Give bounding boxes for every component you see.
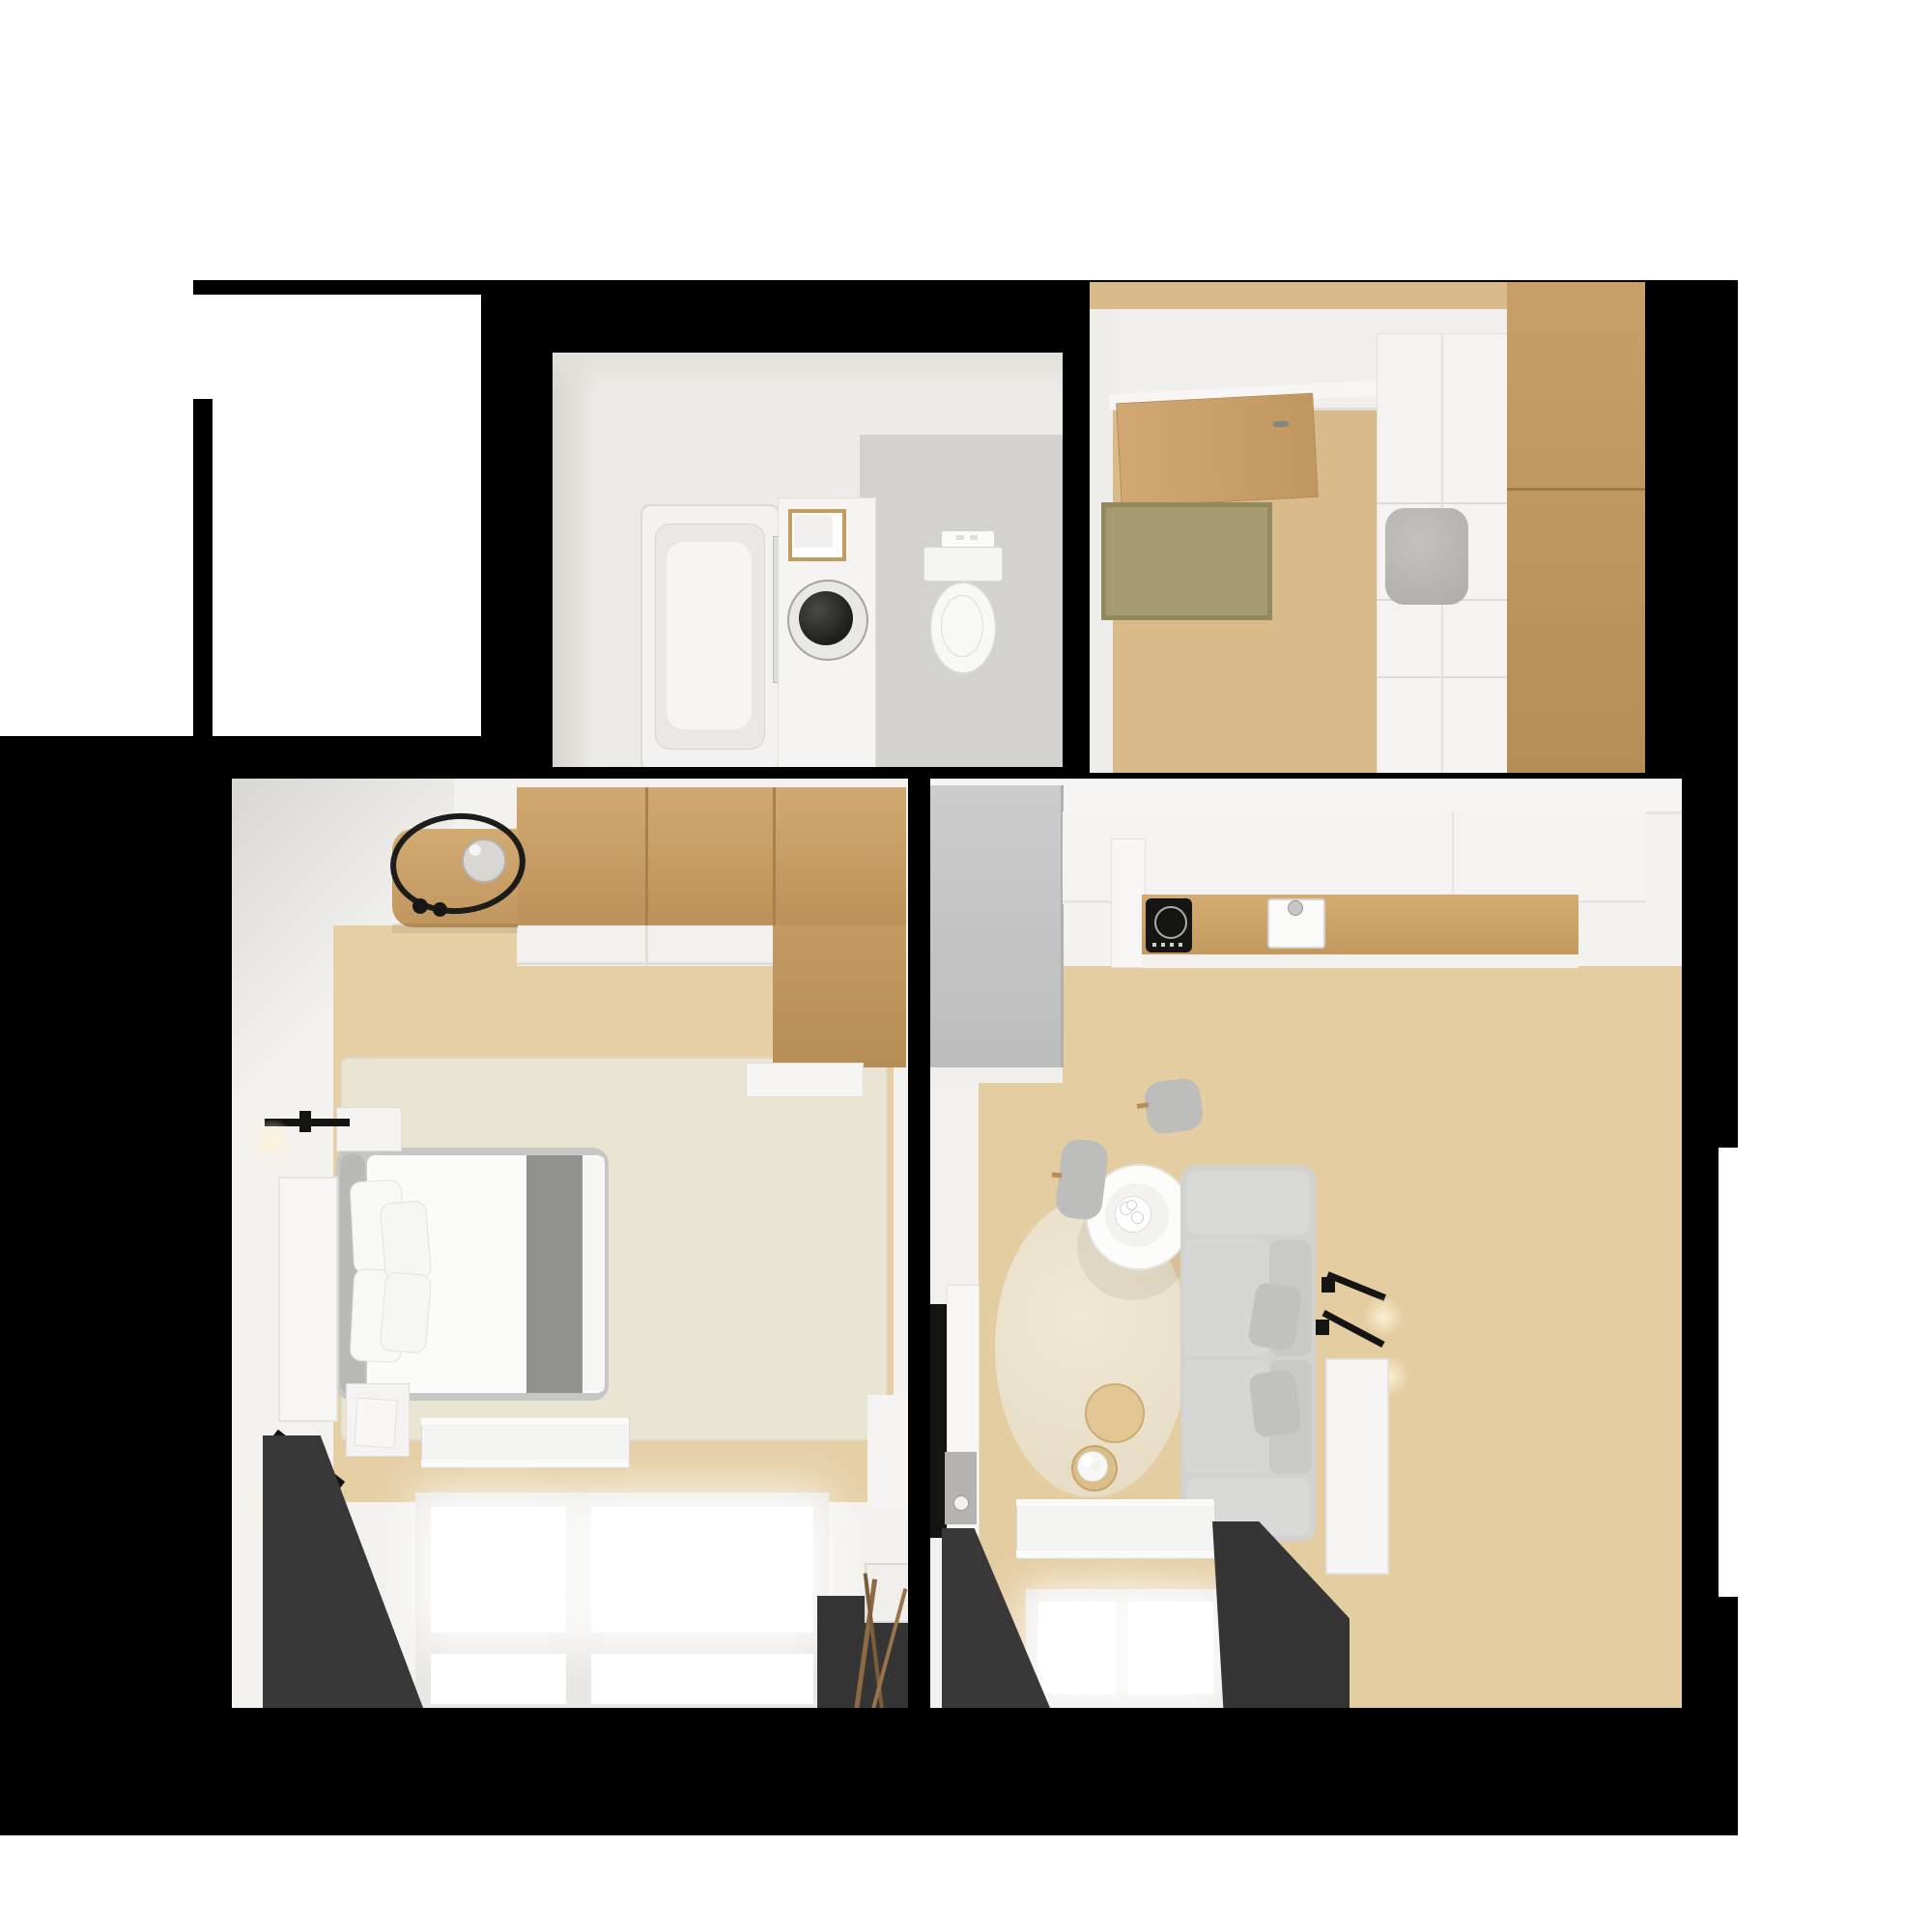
- pillow-4: [380, 1271, 433, 1354]
- window-pane-1: [431, 1507, 566, 1633]
- spot-vase-2: [433, 902, 447, 917]
- cooktop-ring: [1154, 906, 1187, 939]
- kitchen-counter-front: [1142, 954, 1578, 968]
- spot-vase-1: [412, 898, 428, 914]
- sink-faucet: [1288, 900, 1303, 916]
- bedroom-wardrobe: [517, 787, 906, 927]
- window-pane-4: [591, 1654, 813, 1704]
- door-handle: [1273, 421, 1289, 428]
- flush-button-left: [956, 535, 964, 540]
- toilet-flush-plate: [941, 530, 995, 548]
- bathroom-wall-shade-top: [553, 353, 1063, 395]
- wardrobe-wood-panel: [1507, 282, 1645, 773]
- dining-chair-top: [1143, 1076, 1206, 1136]
- hall-pouf: [1385, 508, 1468, 605]
- artwork-left-wall: [278, 1177, 338, 1422]
- glass-vase-highlight: [469, 844, 481, 856]
- living-radiator-rail-top: [1016, 1499, 1213, 1506]
- balcony-floor: [213, 295, 481, 736]
- counter-end-panel: [1111, 838, 1146, 968]
- gray-side-unit: [945, 1452, 977, 1524]
- chair-left-arm: [1052, 1172, 1063, 1178]
- cabinet-band-edge: [517, 962, 773, 965]
- white-notch-right: [1719, 1148, 1739, 1597]
- living-window-pane-1: [1038, 1602, 1116, 1694]
- cooktop-controls: [1152, 943, 1185, 947]
- cabinet-band-seam: [645, 925, 648, 966]
- living-window-pane-2: [1128, 1602, 1213, 1694]
- wall-lamp-right-1-glow: [1363, 1296, 1404, 1337]
- room-bedroom: [232, 779, 908, 1708]
- book-stack: [354, 1398, 397, 1449]
- wall-lamp-glow-top: [249, 1119, 296, 1165]
- white-notch: [1719, 1148, 1739, 1597]
- room-hallway: [1090, 282, 1645, 773]
- console-shadow: [392, 923, 518, 933]
- kitchen-upper-seam: [1452, 811, 1454, 904]
- fridge-gray-block: [930, 785, 1063, 1067]
- sofa-pillow-2: [1248, 1369, 1302, 1437]
- wall-lamp-right-2-head: [1316, 1320, 1329, 1335]
- bed-mattress-strip: [582, 1157, 604, 1391]
- toilet-tank: [923, 547, 1003, 582]
- side-unit-knob: [953, 1495, 969, 1511]
- pillow-3: [380, 1200, 433, 1283]
- kitchen-counter-wood: [1142, 895, 1578, 956]
- apartment-floorplan-render: [0, 0, 1932, 1932]
- radiator-rail-bottom: [421, 1460, 628, 1466]
- bedroom-wardrobe-right-col: [773, 925, 906, 1067]
- nightstand-top: [336, 1107, 402, 1151]
- sofa-armrest-top: [1186, 1171, 1310, 1235]
- wall-shelf-desk: [746, 1063, 864, 1097]
- bathtub-basin: [667, 542, 752, 729]
- glass-vase: [462, 838, 506, 883]
- wall-lamp-mount-top: [299, 1111, 311, 1132]
- bedroom-wardrobe-seam-a: [645, 787, 648, 927]
- bedroom-wardrobe-seam-b: [773, 787, 776, 927]
- living-radiator-rail-bottom: [1016, 1550, 1213, 1557]
- bed-runner-blanket: [526, 1155, 582, 1393]
- gray-block-base: [930, 1067, 1063, 1083]
- room-living-kitchen: [930, 779, 1682, 1708]
- flush-button-right: [970, 535, 978, 540]
- sofa-pillow-1: [1247, 1282, 1303, 1352]
- side-desk: [867, 1395, 908, 1509]
- balcony-door-gap: [193, 295, 213, 399]
- coffee-table-large: [1085, 1383, 1145, 1443]
- entry-door: [1116, 393, 1318, 508]
- kitchen-upper-cabinets: [1063, 811, 1646, 904]
- washer-drum: [799, 591, 853, 645]
- bathroom-wall-shade-left: [553, 353, 597, 767]
- window-pane-2: [591, 1507, 813, 1633]
- toilet-seat: [941, 595, 983, 657]
- window-pane-3: [431, 1654, 566, 1704]
- plate-3: [1126, 1200, 1137, 1210]
- room-balcony: [193, 295, 481, 736]
- room-bathroom: [553, 353, 1063, 767]
- radiator-rail-top: [421, 1418, 628, 1425]
- towel-stack: [794, 515, 833, 548]
- entry-mat: [1101, 502, 1272, 620]
- plate-2: [1131, 1211, 1144, 1224]
- flower-ball-2: [1091, 1461, 1100, 1470]
- artwork-right-wall: [1325, 1358, 1389, 1575]
- wood-panel-seam: [1507, 488, 1645, 491]
